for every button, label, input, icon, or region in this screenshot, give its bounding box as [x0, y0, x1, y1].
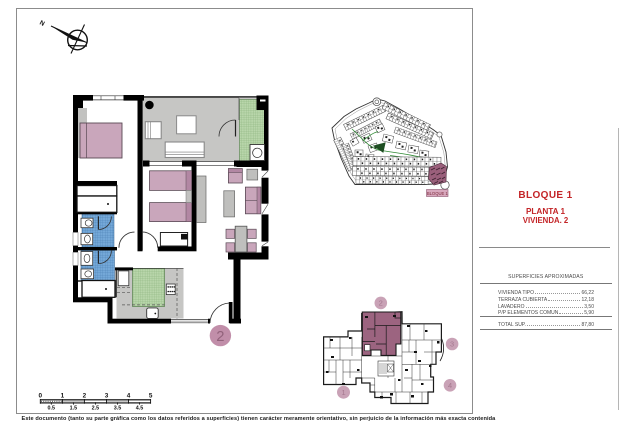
svg-text:2.5: 2.5	[92, 405, 100, 411]
svg-text:0.5: 0.5	[48, 405, 56, 411]
svg-text:1.5: 1.5	[70, 405, 78, 411]
svg-text:4.5: 4.5	[136, 405, 144, 411]
svg-text:2: 2	[83, 393, 87, 400]
svg-text:5: 5	[149, 393, 153, 400]
svg-text:3: 3	[105, 393, 109, 400]
svg-text:0: 0	[39, 393, 43, 400]
svg-text:4: 4	[127, 393, 131, 400]
svg-text:1: 1	[61, 393, 65, 400]
svg-text:3.5: 3.5	[114, 405, 122, 411]
